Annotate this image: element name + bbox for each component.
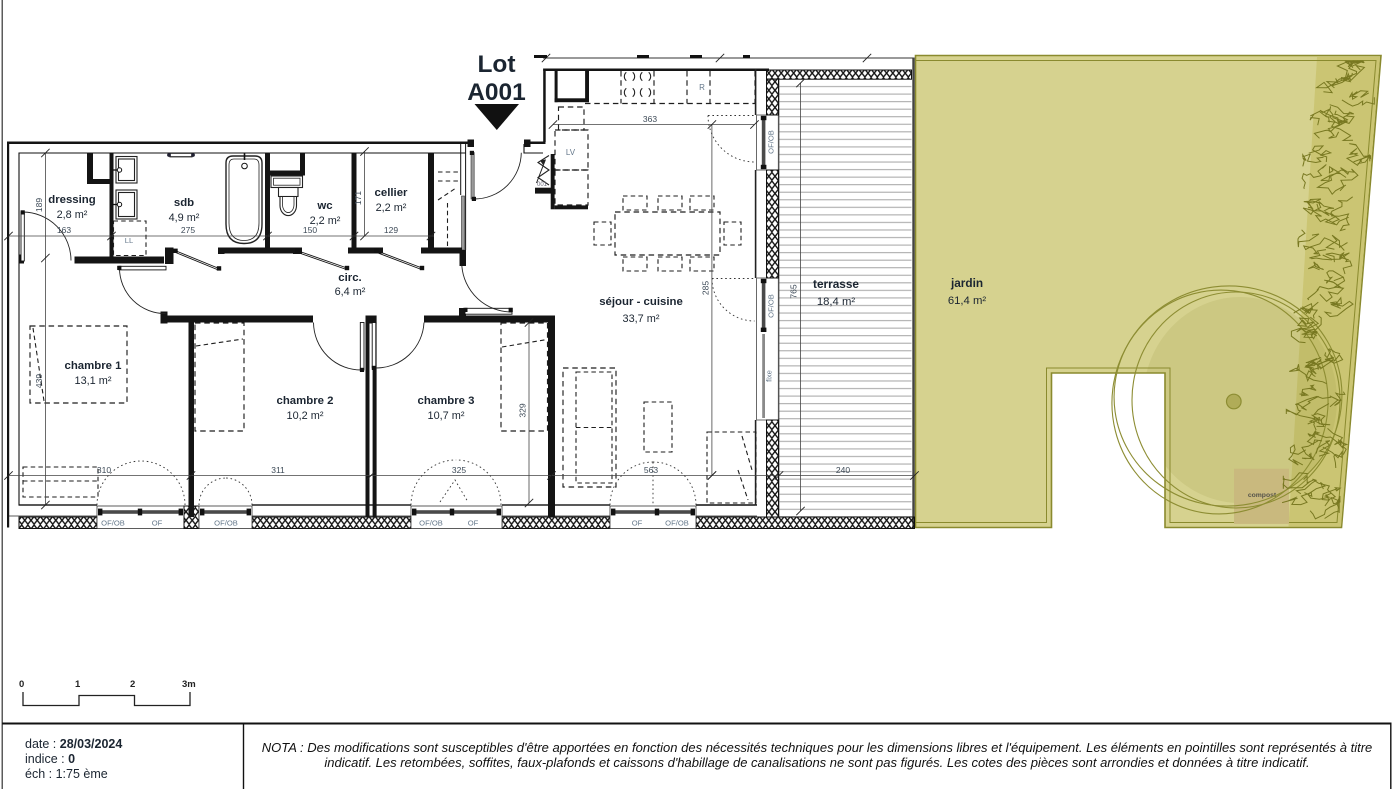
svg-text:éch : 1:75 ème: éch : 1:75 ème [25, 767, 108, 781]
svg-text:2,2 m²: 2,2 m² [376, 202, 407, 214]
svg-text:chambre 3: chambre 3 [418, 395, 475, 407]
svg-text:310: 310 [97, 465, 111, 475]
svg-text:10,2 m²: 10,2 m² [287, 410, 324, 422]
svg-text:329: 329 [518, 403, 528, 417]
svg-text:33,7 m²: 33,7 m² [623, 313, 660, 325]
svg-text:275: 275 [181, 225, 195, 235]
svg-text:311: 311 [271, 465, 285, 475]
svg-text:OF/OB: OF/OB [665, 519, 689, 528]
svg-text:OF/OB: OF/OB [419, 519, 443, 528]
svg-text:2: 2 [130, 679, 135, 690]
svg-text:dressing: dressing [48, 194, 96, 206]
svg-text:OF: OF [152, 519, 163, 528]
svg-text:jardin: jardin [950, 276, 983, 290]
svg-text:2,8 m²: 2,8 m² [57, 209, 88, 221]
svg-text:2,2 m²: 2,2 m² [310, 215, 341, 227]
svg-text:terrasse: terrasse [813, 277, 859, 291]
svg-text:OF/OB: OF/OB [767, 130, 776, 154]
svg-text:765: 765 [789, 284, 799, 298]
svg-text:OF/OB: OF/OB [101, 519, 125, 528]
svg-text:chambre 2: chambre 2 [277, 395, 334, 407]
svg-text:date : 28/03/2024: date : 28/03/2024 [25, 737, 122, 751]
svg-text:171: 171 [353, 191, 363, 205]
svg-text:R: R [699, 83, 705, 92]
svg-text:129: 129 [384, 225, 398, 235]
svg-text:325: 325 [452, 465, 466, 475]
svg-text:indice : 0: indice : 0 [25, 752, 75, 766]
svg-text:wc: wc [316, 200, 332, 212]
svg-text:1: 1 [75, 679, 81, 690]
svg-text:18,4 m²: 18,4 m² [817, 296, 856, 308]
svg-text:NOTA : Des modifications sont: NOTA : Des modifications sont susceptibl… [262, 740, 1373, 755]
svg-text:285: 285 [701, 281, 711, 295]
svg-text:13,1 m²: 13,1 m² [75, 375, 112, 387]
svg-text:fixe: fixe [765, 370, 774, 382]
svg-text:OF/OB: OF/OB [214, 519, 238, 528]
svg-text:10,7 m²: 10,7 m² [428, 410, 465, 422]
svg-text:LL: LL [125, 236, 133, 245]
svg-text:séjour - cuisine: séjour - cuisine [599, 296, 683, 308]
svg-text:439: 439 [34, 374, 44, 388]
svg-text:3m: 3m [182, 679, 196, 690]
svg-text:sdb: sdb [174, 197, 194, 209]
svg-text:OF: OF [468, 519, 479, 528]
svg-text:189: 189 [34, 198, 44, 212]
svg-text:indicatif. Les retombées, soff: indicatif. Les retombées, soffites, faux… [324, 755, 1309, 770]
svg-text:363: 363 [643, 114, 657, 124]
svg-text:163: 163 [57, 225, 71, 235]
svg-text:4,9 m²: 4,9 m² [169, 212, 200, 224]
svg-text:0: 0 [19, 679, 24, 690]
svg-text:001: 001 [537, 182, 548, 188]
svg-text:cellier: cellier [375, 187, 408, 199]
svg-text:Lot: Lot [477, 51, 515, 78]
svg-text:240: 240 [836, 465, 850, 475]
svg-text:chambre 1: chambre 1 [65, 360, 123, 372]
svg-text:LV: LV [566, 148, 576, 157]
svg-text:circ.: circ. [338, 272, 361, 284]
svg-text:A001: A001 [467, 79, 526, 106]
svg-text:OF/OB: OF/OB [767, 294, 776, 318]
svg-text:6,4 m²: 6,4 m² [335, 286, 366, 298]
svg-text:61,4 m²: 61,4 m² [948, 295, 987, 307]
svg-text:OF: OF [632, 519, 643, 528]
svg-text:563: 563 [644, 465, 658, 475]
svg-text:compost: compost [1248, 492, 1277, 499]
